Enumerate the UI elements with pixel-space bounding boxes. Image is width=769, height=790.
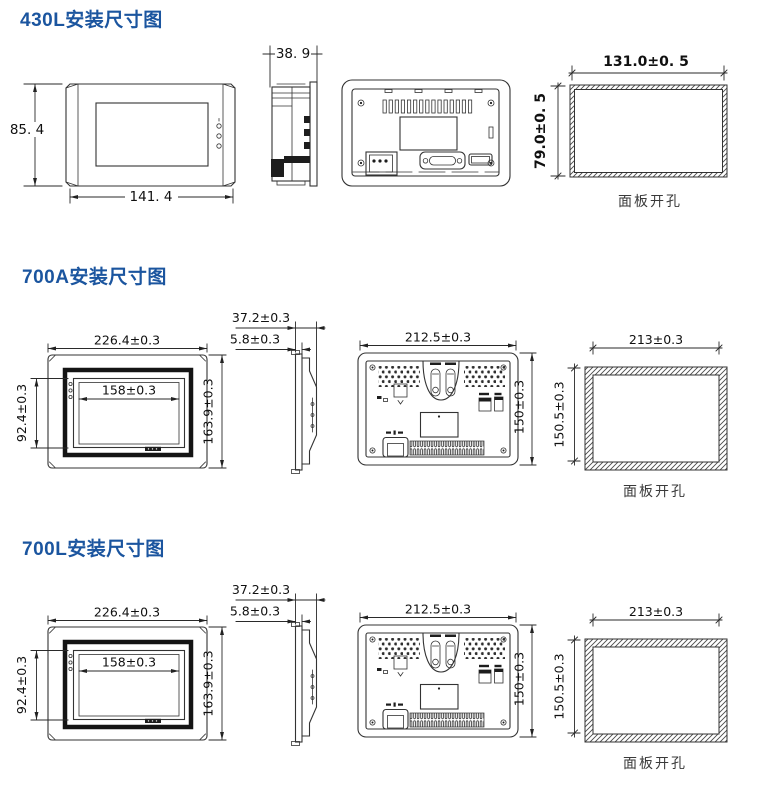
700l-mount-notch (423, 633, 459, 672)
430l-front-view: 85. 4 141. 4 (8, 84, 235, 205)
430l-label-area (400, 117, 457, 150)
dim-700l-rear-width: 212.5±0.3 (405, 602, 471, 617)
dim-430l-cutout-width: 131.0±0. 5 (603, 54, 689, 70)
dim-700l-cutout-width: 213±0.3 (629, 604, 683, 619)
dim-700l-screen-width: 158±0.3 (102, 655, 156, 670)
dim-700l-side-bezel: 5.8±0.3 (230, 604, 280, 619)
700l-panel-cutout: 213±0.3 150.5±0.3 面板开孔 (552, 604, 728, 771)
dim-700a-rear-width: 212.5±0.3 (405, 330, 471, 345)
dimension-diagram-page: 430L安装尺寸图 700A安装尺寸图 700L安装尺寸图 (0, 0, 769, 790)
dim-430l-cutout-height: 79.0±0. 5 (533, 93, 549, 169)
dim-700l-cutout-height: 150.5±0.3 (552, 653, 567, 719)
700a-mount-notch (423, 361, 459, 400)
700a-power-connector (383, 431, 408, 458)
700a-front-label (145, 447, 161, 451)
section-700a-drawing: 226.4±0.3 163.9±0.3 92.4±0.3 158±0.3 37.… (14, 310, 727, 499)
dim-700l-side-depth: 37.2±0.3 (232, 582, 290, 597)
700a-cutout-caption: 面板开孔 (623, 483, 687, 499)
700a-terminal-strip (410, 441, 484, 455)
dim-700a-side-bezel: 5.8±0.3 (230, 332, 280, 347)
dim-700a-cutout-width: 213±0.3 (629, 332, 683, 347)
700l-front-label (145, 719, 161, 723)
700l-terminal-strip (410, 713, 484, 727)
dim-700a-front-height: 163.9±0.3 (201, 378, 216, 444)
dim-700l-front-width: 226.4±0.3 (94, 605, 160, 620)
dim-430l-side-depth: 38. 9 (276, 46, 310, 62)
430l-db9-connector (420, 152, 465, 169)
700l-side-view: 37.2±0.3 5.8±0.3 (230, 582, 325, 746)
700a-rear-view: 212.5±0.3 150±0.3 (358, 330, 536, 466)
700a-led-indicators (69, 382, 72, 398)
dim-700a-side-depth: 37.2±0.3 (232, 310, 290, 325)
430l-panel-cutout: 131.0±0. 5 79.0±0. 5 面板开孔 (533, 54, 727, 209)
700l-rear-view: 212.5±0.3 150±0.3 (358, 602, 536, 738)
430l-side-view: 38. 9 (263, 45, 322, 186)
700a-side-view: 37.2±0.3 5.8±0.3 (230, 310, 325, 474)
430l-vent-slots (383, 100, 472, 113)
section-700l-drawing: 226.4±0.3 163.9±0.3 92.4±0.3 158±0.3 37.… (14, 582, 727, 771)
700l-port-connectors (479, 665, 503, 683)
dim-700l-rear-height: 150±0.3 (512, 652, 527, 706)
700l-vent-holes-right (464, 638, 505, 659)
section-430l-drawing: 85. 4 141. 4 38. 9 (8, 45, 727, 209)
700a-vent-holes-right (464, 366, 505, 387)
430l-rear-view (342, 80, 510, 186)
430l-power-terminal (366, 152, 397, 175)
dim-700a-screen-width: 158±0.3 (102, 383, 156, 398)
dim-700l-screen-height: 92.4±0.3 (14, 656, 29, 714)
700a-front-view: 226.4±0.3 163.9±0.3 92.4±0.3 158±0.3 (14, 333, 226, 469)
700l-led-indicators (69, 654, 72, 670)
dim-700a-rear-height: 150±0.3 (512, 380, 527, 434)
drawing-canvas: 85. 4 141. 4 38. 9 (0, 0, 769, 790)
700l-cutout-caption: 面板开孔 (623, 755, 687, 771)
430l-led-indicators (217, 119, 221, 149)
700l-front-view: 226.4±0.3 163.9±0.3 92.4±0.3 158±0.3 (14, 605, 226, 741)
dim-430l-front-width: 141. 4 (130, 189, 173, 205)
dim-700a-screen-height: 92.4±0.3 (14, 384, 29, 442)
700a-port-connectors (479, 393, 503, 411)
dim-700a-cutout-height: 150.5±0.3 (552, 381, 567, 447)
dim-700a-front-width: 226.4±0.3 (94, 333, 160, 348)
dim-700l-front-height: 163.9±0.3 (201, 650, 216, 716)
430l-usb-connector (469, 154, 492, 165)
700a-panel-cutout: 213±0.3 150.5±0.3 面板开孔 (552, 332, 728, 499)
430l-cutout-caption: 面板开孔 (618, 193, 682, 209)
dim-430l-front-height: 85. 4 (10, 122, 44, 138)
700l-power-connector (383, 703, 408, 730)
